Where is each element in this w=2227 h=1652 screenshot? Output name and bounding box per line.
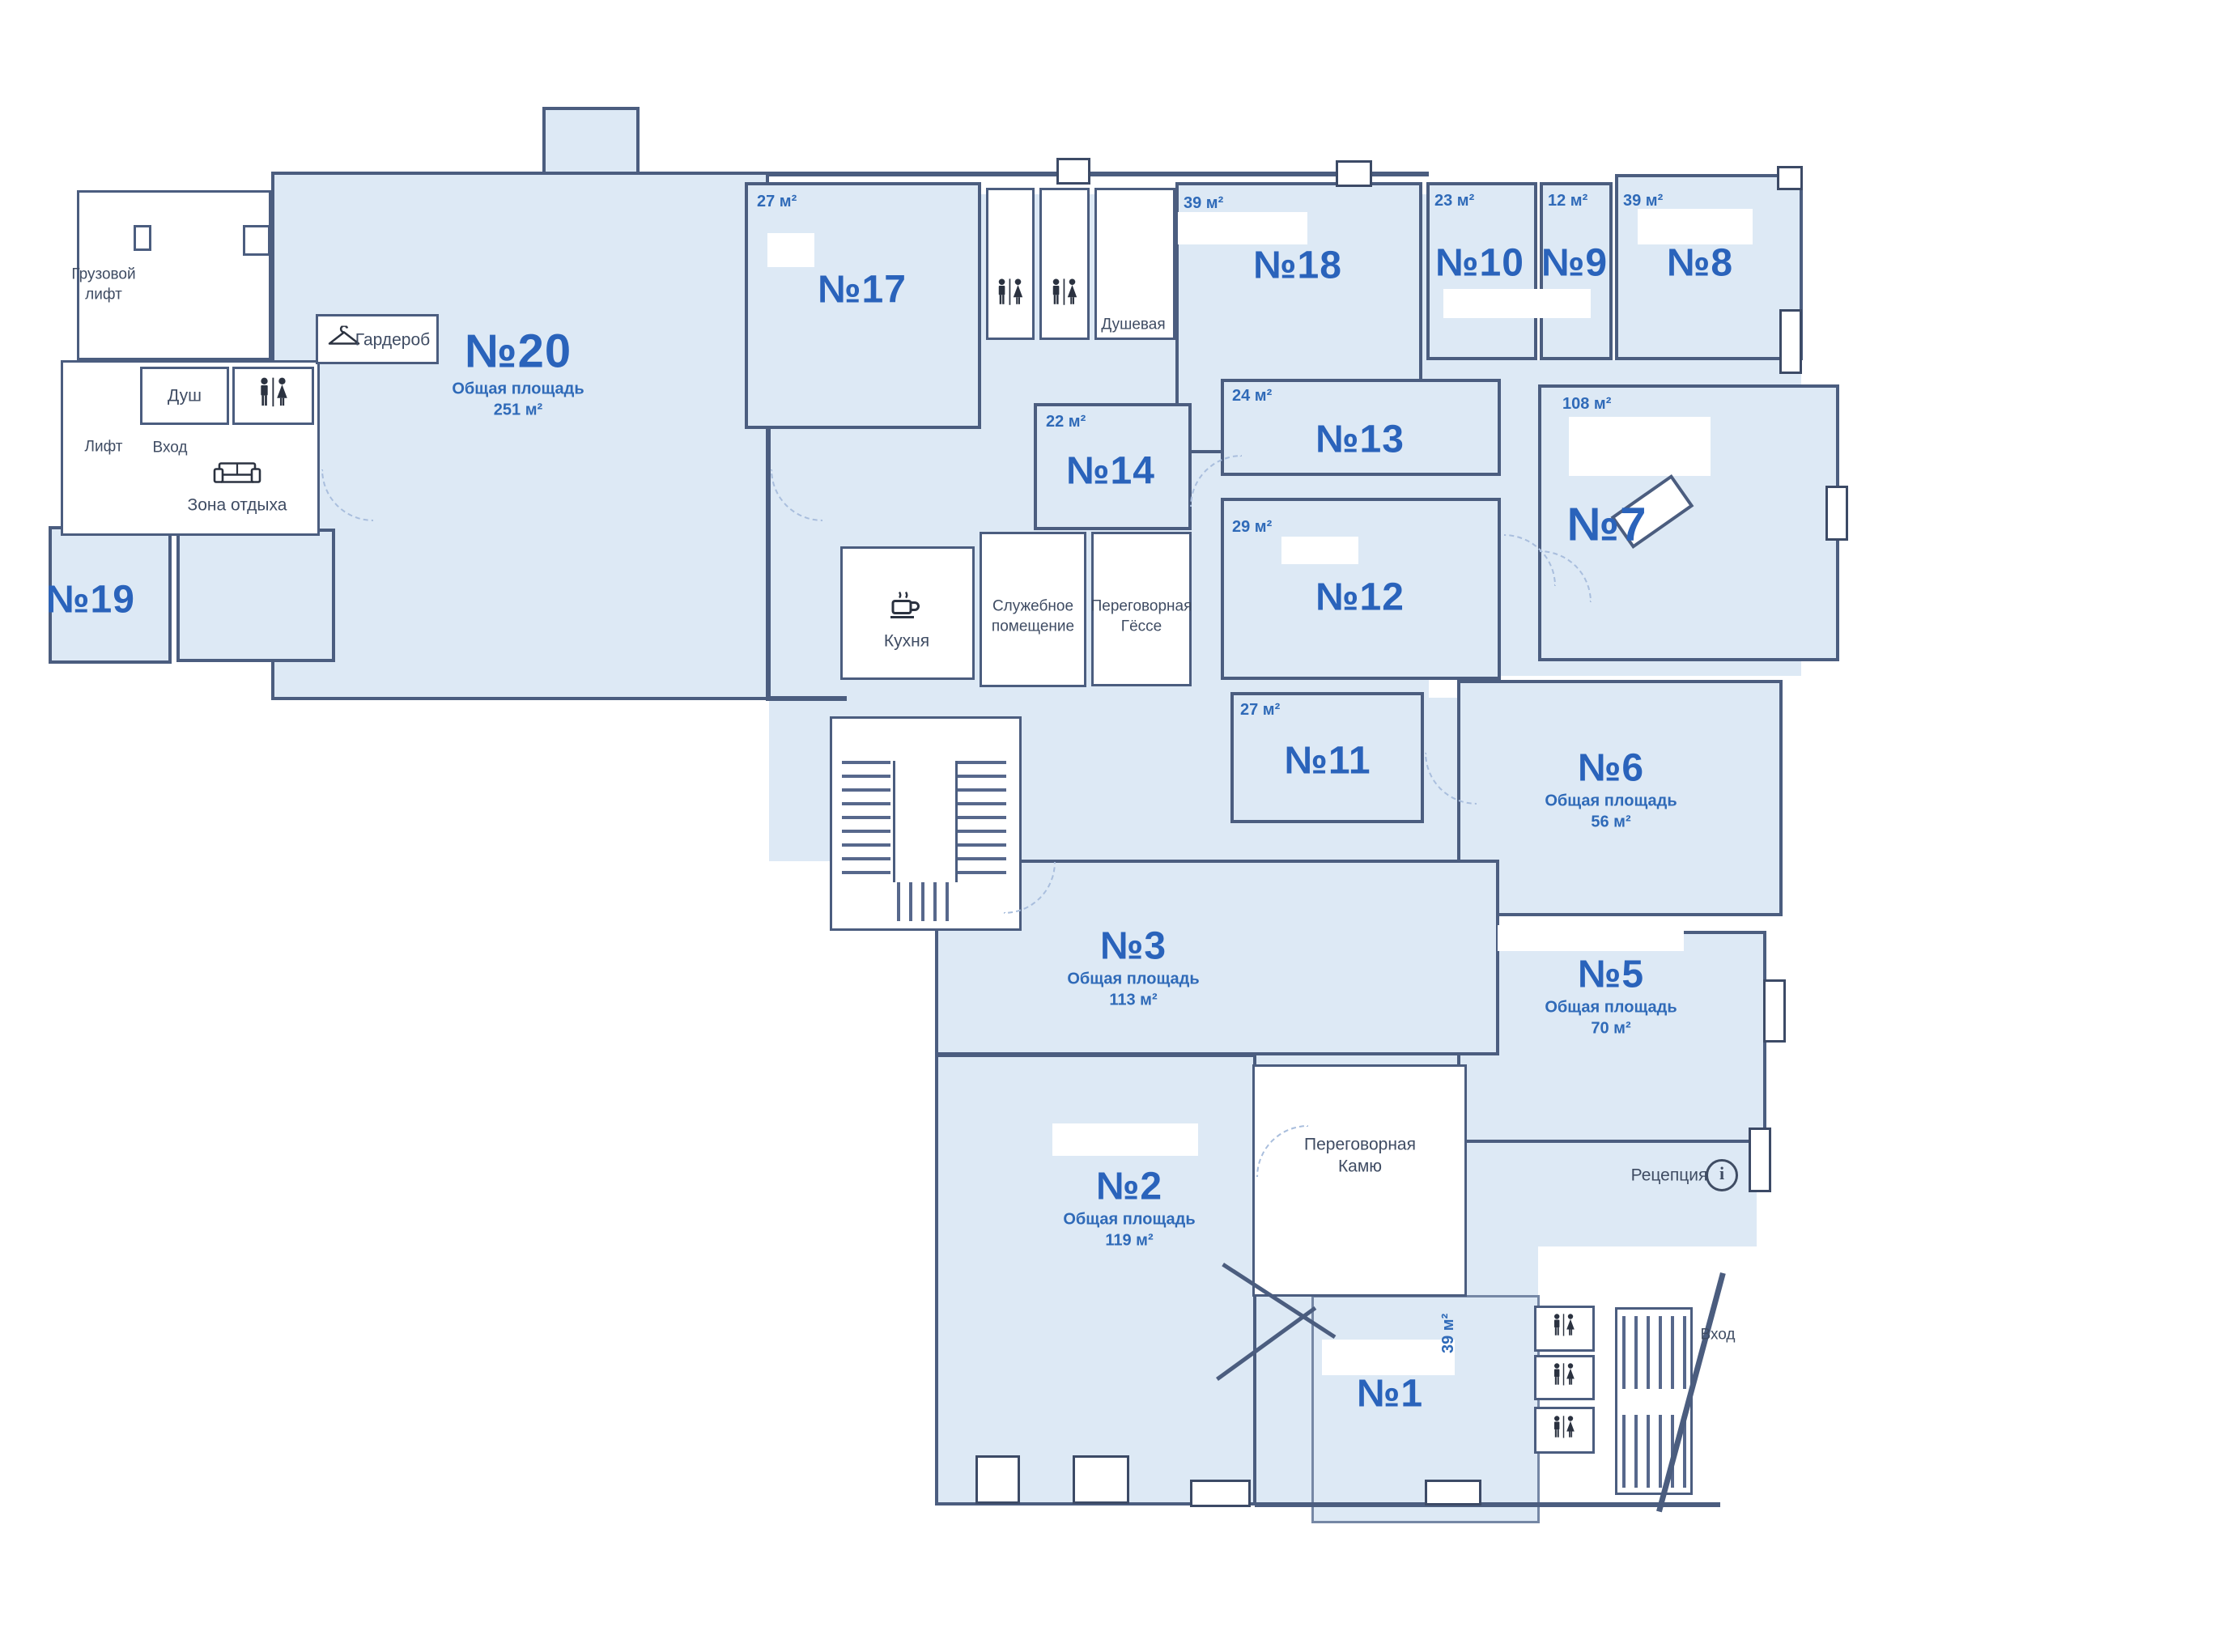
room-11-label: №11 xyxy=(1284,739,1371,784)
room-6-area-value: 56 м² xyxy=(1545,812,1677,833)
room-2-number: №2 xyxy=(1063,1165,1195,1209)
room-1-label: №1 xyxy=(1357,1372,1423,1416)
stairs-central-rail-right xyxy=(955,761,958,882)
room-1-number: №1 xyxy=(1357,1372,1423,1416)
stairs-central-rail-left xyxy=(893,761,895,882)
meeting-gesse-label: Переговорная Гёссе xyxy=(1091,597,1192,636)
stairs-central-right-flight xyxy=(958,761,1006,882)
kitchen-label: Кухня xyxy=(884,630,929,652)
wall-top-corridor xyxy=(769,172,1429,176)
room-6-number: №6 xyxy=(1545,746,1677,791)
floor-plan: i №20 Общая площадь 251 м² №19 №17 №18 №… xyxy=(0,0,2227,1652)
room-18-label: №18 xyxy=(1253,244,1342,288)
wall-corridor-bottom xyxy=(766,696,847,701)
elevator-label: Лифт xyxy=(85,438,123,458)
redaction-patch-7 xyxy=(1569,417,1711,476)
stairs-central-lower-flight xyxy=(897,882,955,921)
room-6-label: №6 Общая площадь 56 м² xyxy=(1545,746,1677,833)
redaction-patch-17 xyxy=(767,233,814,267)
entrance-bottom-label: Вход xyxy=(1701,1326,1736,1346)
room-19-label: №19 xyxy=(46,578,135,622)
wc-icon-bottom-3 xyxy=(1549,1416,1579,1446)
room-9-number: №9 xyxy=(1541,241,1608,286)
meeting-kamyu-line1: Переговорная xyxy=(1304,1134,1416,1156)
wc-icon-stall-2 xyxy=(1048,278,1082,313)
meeting-kamyu-label: Переговорная Камю xyxy=(1304,1134,1416,1178)
room-14-label: №14 xyxy=(1066,449,1155,494)
room-1-area-tag: 39 м² xyxy=(1439,1314,1458,1353)
redaction-patch-2 xyxy=(1052,1123,1198,1156)
redaction-patch-1 xyxy=(1322,1340,1455,1375)
wc-stall-top-1 xyxy=(986,188,1035,340)
stairs-bottom xyxy=(1615,1307,1693,1495)
stairs-central xyxy=(830,716,1022,931)
meeting-gesse-line1: Переговорная xyxy=(1091,597,1192,617)
service-room-line1: Служебное xyxy=(992,597,1074,617)
stairs-central-left-flight xyxy=(842,761,890,882)
room-9-label: №9 xyxy=(1541,241,1608,286)
room-5-area-value: 70 м² xyxy=(1545,1018,1677,1039)
pillar-top-2 xyxy=(1336,160,1372,187)
entrance-label: Вход xyxy=(153,439,188,459)
pillar-top-1 xyxy=(1056,158,1090,185)
rest-zone-label: Зона отдыха xyxy=(188,494,287,516)
room-11-area-tag: 27 м² xyxy=(1240,701,1280,720)
meeting-room-kamyu xyxy=(1252,1064,1467,1297)
room-5-number: №5 xyxy=(1545,953,1677,997)
room-2-area-title: Общая площадь xyxy=(1063,1209,1195,1230)
coffee-cup-icon xyxy=(886,591,924,627)
freight-elevator-line2: лифт xyxy=(71,285,135,305)
room-7-label: №7 xyxy=(1567,498,1647,552)
pillar-bottom-3 xyxy=(1190,1480,1251,1507)
room-12-area-tag: 29 м² xyxy=(1232,518,1272,537)
wc-icon-lobby xyxy=(255,377,292,415)
pillar-right-2 xyxy=(1779,309,1802,374)
pillar-bottom-4 xyxy=(1425,1480,1481,1505)
meeting-gesse-line2: Гёссе xyxy=(1091,617,1192,637)
freight-elevator-line1: Грузовой xyxy=(71,265,135,285)
room-20 xyxy=(271,172,769,700)
room-14-number: №14 xyxy=(1066,449,1155,494)
pillar-right-1 xyxy=(1777,166,1803,190)
room-11-number: №11 xyxy=(1284,739,1371,784)
room-7-number: №7 xyxy=(1567,498,1647,552)
redaction-patch-10-9 xyxy=(1443,289,1591,318)
room-3-number: №3 xyxy=(1067,924,1199,969)
redaction-patch-5 xyxy=(1498,925,1684,951)
room-10-area-tag: 23 м² xyxy=(1434,192,1474,210)
room-14-area-tag: 22 м² xyxy=(1046,413,1086,431)
pillar-right-3 xyxy=(1825,486,1848,541)
redaction-patch-12 xyxy=(1281,537,1358,564)
room-19b xyxy=(176,529,335,662)
room-20-number: №20 xyxy=(452,325,584,379)
room-20-area-value: 251 м² xyxy=(452,400,584,421)
room-10-number: №10 xyxy=(1435,241,1524,286)
room-13-label: №13 xyxy=(1315,418,1405,462)
elevator-shaft-2 xyxy=(243,225,270,256)
freight-elevator-label: Грузовой лифт xyxy=(71,265,135,304)
stairs-bottom-treads-upper xyxy=(1622,1316,1687,1389)
pillar-right-5 xyxy=(1749,1128,1771,1192)
room-13-number: №13 xyxy=(1315,418,1405,462)
sofa-icon xyxy=(212,461,262,492)
room-2 xyxy=(935,1054,1256,1505)
room-5-label: №5 Общая площадь 70 м² xyxy=(1545,953,1677,1039)
service-room-label: Служебное помещение xyxy=(992,597,1074,636)
room-8-number: №8 xyxy=(1667,241,1733,286)
wc-icon-bottom-2 xyxy=(1549,1363,1579,1393)
redaction-patch-8 xyxy=(1638,209,1753,244)
shower-room-label: Душевая xyxy=(1101,316,1165,336)
room-20-label: №20 Общая площадь 251 м² xyxy=(452,325,584,421)
room-17-area-tag: 27 м² xyxy=(757,193,797,211)
pillar-bottom-2 xyxy=(1073,1455,1129,1504)
room-8-label: №8 xyxy=(1667,241,1733,286)
room-18-area-tag: 39 м² xyxy=(1184,194,1223,213)
room-6-area-title: Общая площадь xyxy=(1545,791,1677,812)
room-9-area-tag: 12 м² xyxy=(1548,192,1587,210)
info-icon: i xyxy=(1706,1159,1738,1191)
room-18-number: №18 xyxy=(1253,244,1342,288)
shower-label: Душ xyxy=(168,384,202,406)
pillar-right-4 xyxy=(1763,979,1786,1043)
elevator-shaft-1 xyxy=(134,225,151,251)
room-7-area-tag: 108 м² xyxy=(1562,395,1611,414)
room-2-area-value: 119 м² xyxy=(1063,1230,1195,1251)
redaction-patch-18 xyxy=(1178,212,1307,244)
room-5-area-title: Общая площадь xyxy=(1545,997,1677,1018)
meeting-kamyu-line2: Камю xyxy=(1304,1156,1416,1178)
wc-icon-stall-1 xyxy=(993,278,1027,313)
room-3-label: №3 Общая площадь 113 м² xyxy=(1067,924,1199,1011)
room-10-label: №10 xyxy=(1435,241,1524,286)
service-room-line2: помещение xyxy=(992,617,1074,637)
room-17-number: №17 xyxy=(818,268,907,312)
reception-label: Рецепция xyxy=(1631,1164,1708,1186)
room-12-label: №12 xyxy=(1315,575,1405,620)
room-12-number: №12 xyxy=(1315,575,1405,620)
room-2-label: №2 Общая площадь 119 м² xyxy=(1063,1165,1195,1251)
room-8-area-tag: 39 м² xyxy=(1623,192,1663,210)
room-19-number: №19 xyxy=(46,578,135,622)
pillar-bottom-1 xyxy=(975,1455,1020,1504)
room-17-label: №17 xyxy=(818,268,907,312)
wardrobe-label: Гардероб xyxy=(355,329,430,350)
room-20-area-title: Общая площадь xyxy=(452,379,584,400)
wc-stall-top-2 xyxy=(1039,188,1090,340)
room-13-area-tag: 24 м² xyxy=(1232,387,1272,406)
room-3-area-title: Общая площадь xyxy=(1067,969,1199,990)
wc-icon-bottom-1 xyxy=(1549,1314,1579,1344)
wall-bottom-outer xyxy=(1255,1502,1720,1507)
room-3-area-value: 113 м² xyxy=(1067,990,1199,1011)
